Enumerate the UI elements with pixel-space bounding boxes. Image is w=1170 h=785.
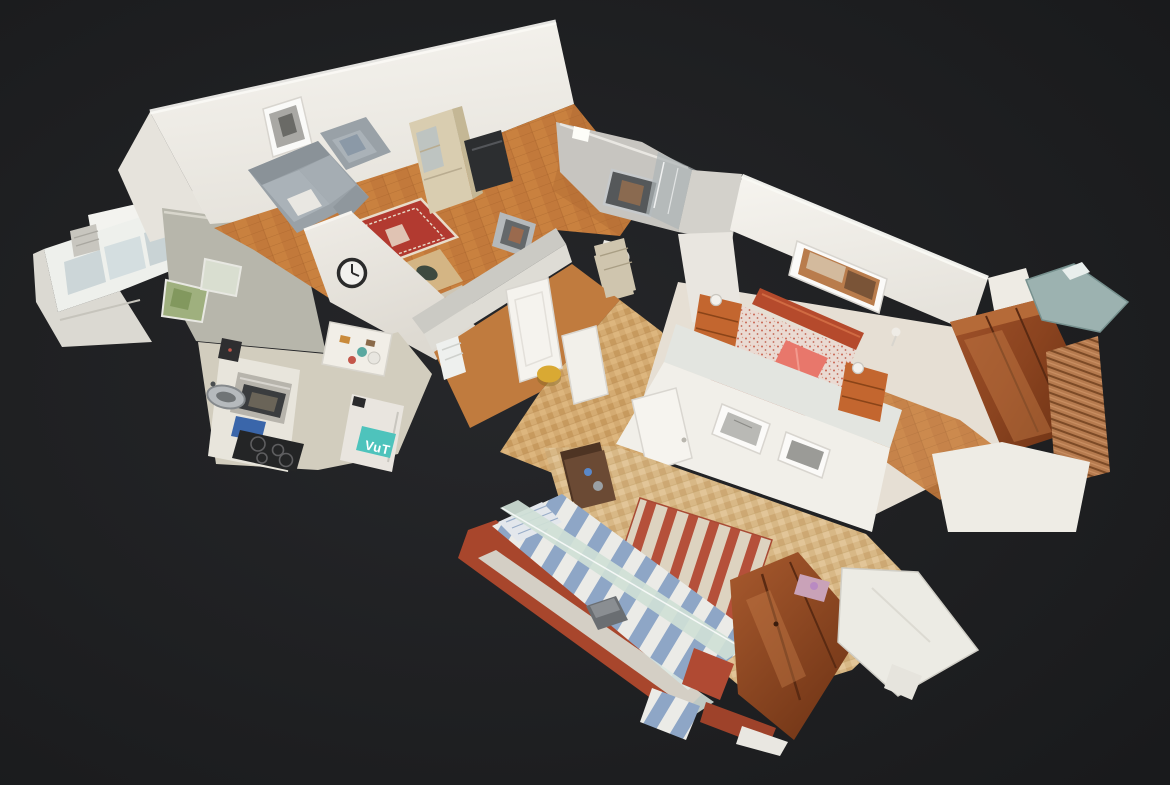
coffee-machine — [218, 338, 242, 362]
bedside-lamp-2 — [853, 363, 864, 374]
dollhouse-scene: VuT — [0, 0, 1170, 785]
dollhouse-3d-view[interactable]: VuT — [0, 0, 1170, 785]
bedside-lamp — [711, 295, 722, 306]
blue-mug — [584, 468, 592, 476]
stool — [537, 366, 561, 387]
wall-lamp — [892, 328, 901, 337]
wall-clock — [339, 260, 366, 287]
